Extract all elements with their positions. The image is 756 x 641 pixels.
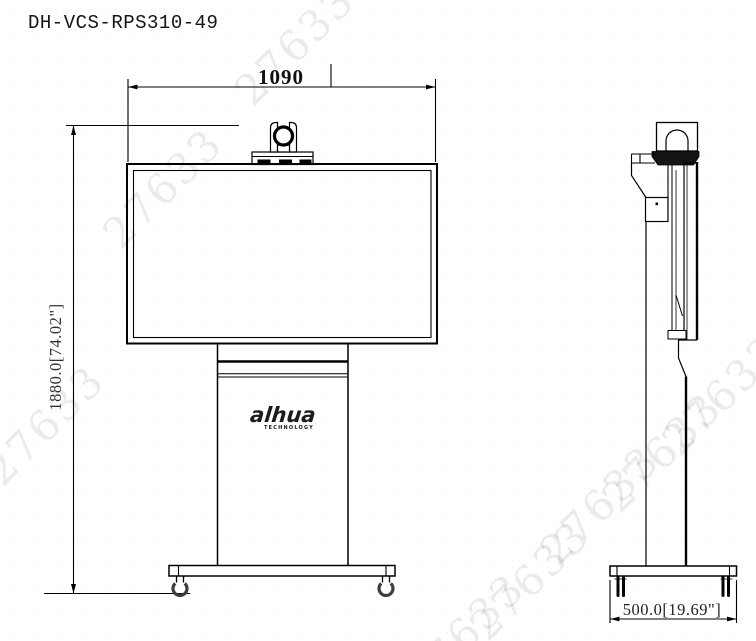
display-outer <box>127 164 437 344</box>
camera-lens <box>275 127 293 145</box>
camera-front <box>252 123 313 165</box>
base-side <box>610 566 737 596</box>
front-view <box>127 123 437 596</box>
dahua-logo-subtext: TECHNOLOGY <box>264 425 314 431</box>
technical-drawing <box>0 0 756 641</box>
mount-bracket-side <box>632 154 683 330</box>
caster-left <box>173 576 187 595</box>
camera-side <box>652 123 699 166</box>
caster-side-left <box>615 577 627 596</box>
base-plate-front <box>169 566 395 577</box>
spec-sheet-drawing: 2763327633276332763327633276332763327633 <box>0 0 756 641</box>
dimension-depth-label: 500.0[19.69"] <box>620 602 724 618</box>
dimension-height-label: 1880.0[74.02"] <box>46 303 66 410</box>
stand-column-side <box>646 222 686 567</box>
base-front <box>169 566 395 596</box>
dimension-height-lines <box>44 126 239 594</box>
drawing-title: DH-VCS-RPS310-49 <box>28 12 218 34</box>
dimension-width-label: 1090 <box>258 65 304 90</box>
display-screen <box>134 171 432 338</box>
base-plate-side <box>610 566 737 576</box>
stand-column-front <box>218 344 349 566</box>
caster-right <box>379 576 393 595</box>
dahua-logo: alhua <box>249 403 317 427</box>
caster-side-right <box>721 577 733 596</box>
side-view <box>610 123 737 596</box>
